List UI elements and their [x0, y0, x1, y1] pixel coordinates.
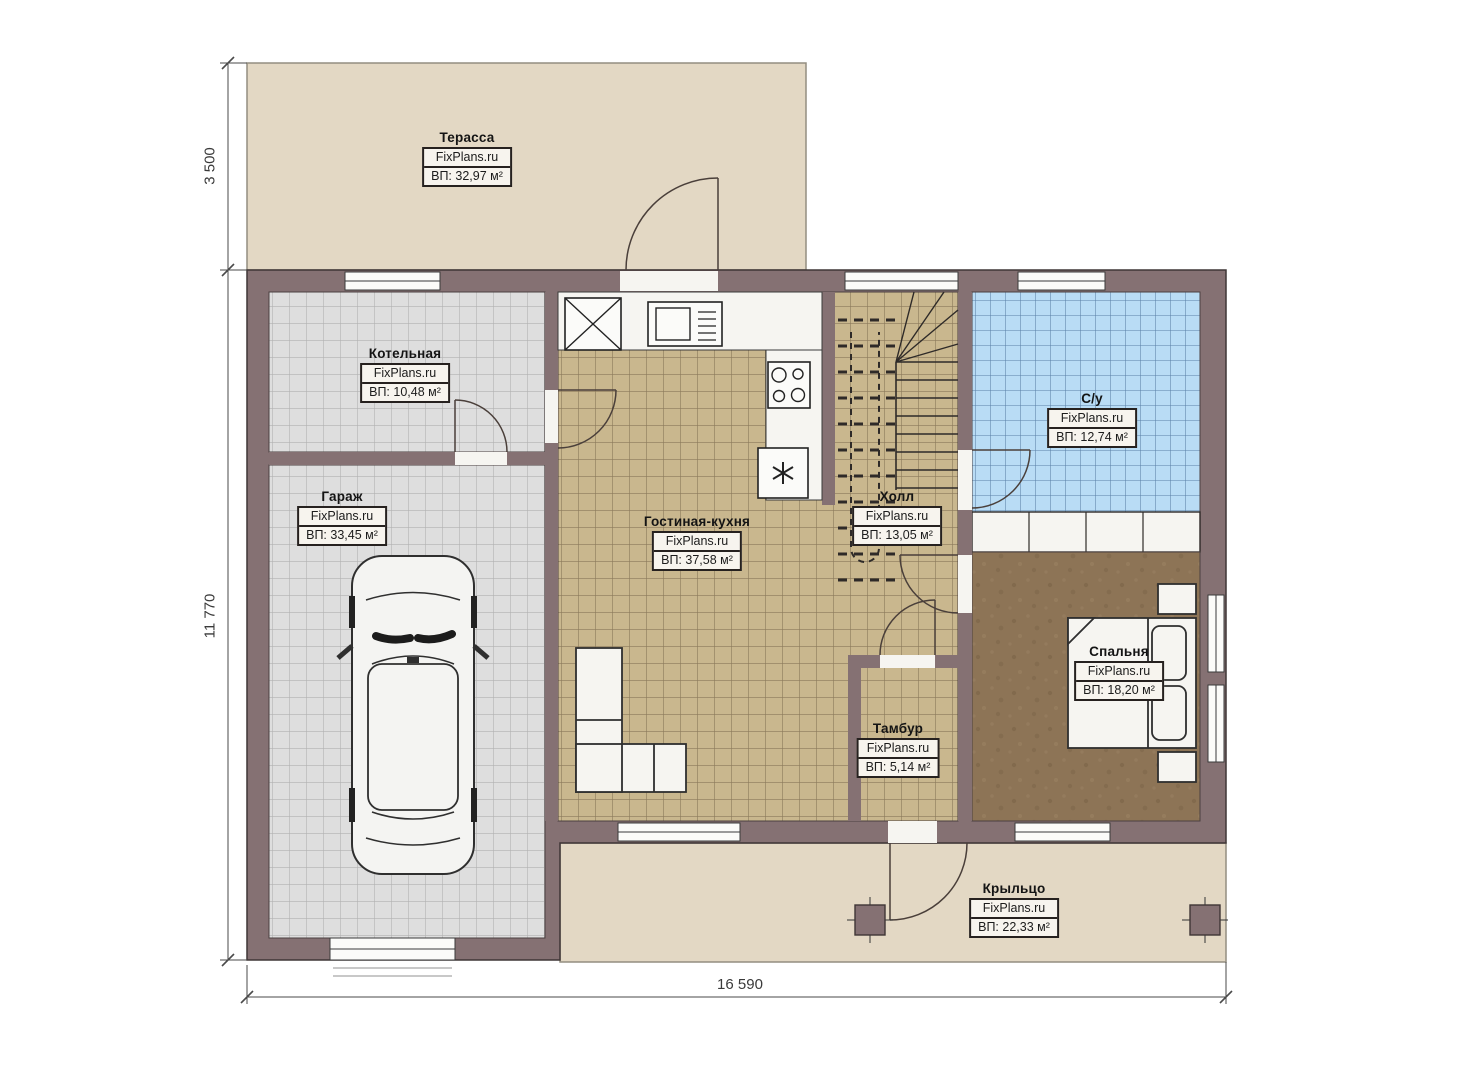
brand-text: FixPlans.ru	[299, 508, 385, 527]
room-name: Котельная	[360, 346, 450, 361]
column	[1190, 905, 1220, 935]
nightstand	[1158, 752, 1196, 782]
porch-deck	[560, 843, 1226, 962]
brand-text: FixPlans.ru	[859, 740, 938, 759]
room-name: Гостиная-кухня	[644, 514, 750, 529]
garage-gate	[330, 938, 455, 976]
room-info-box: FixPlans.ru ВП: 13,05 м²	[852, 506, 942, 546]
room-name: Гараж	[297, 489, 387, 504]
room-area-text: ВП: 33,45 м²	[299, 527, 385, 544]
room-info-box: FixPlans.ru ВП: 22,33 м²	[969, 898, 1059, 938]
room-area-text: ВП: 13,05 м²	[854, 527, 940, 544]
room-label-living-kitchen: Гостиная-кухня FixPlans.ru ВП: 37,58 м²	[644, 514, 750, 571]
room-area-text: ВП: 32,97 м²	[424, 168, 510, 185]
brand-text: FixPlans.ru	[1049, 410, 1135, 429]
room-label-vestibule: Тамбур FixPlans.ru ВП: 5,14 м²	[857, 721, 940, 778]
room-label-boiler: Котельная FixPlans.ru ВП: 10,48 м²	[360, 346, 450, 403]
room-label-garage: Гараж FixPlans.ru ВП: 33,45 м²	[297, 489, 387, 546]
stove-icon	[768, 362, 810, 408]
room-info-box: FixPlans.ru ВП: 10,48 м²	[360, 363, 450, 403]
brand-text: FixPlans.ru	[1076, 663, 1162, 682]
room-info-box: FixPlans.ru ВП: 37,58 м²	[652, 531, 742, 571]
brand-text: FixPlans.ru	[654, 533, 740, 552]
floor-plan-page: Терасса FixPlans.ru ВП: 32,97 м² Котельн…	[0, 0, 1473, 1080]
room-label-porch: Крыльцо FixPlans.ru ВП: 22,33 м²	[969, 881, 1059, 938]
room-label-bathroom: С/у FixPlans.ru ВП: 12,74 м²	[1047, 391, 1137, 448]
room-area-text: ВП: 18,20 м²	[1076, 682, 1162, 699]
room-name: Спальня	[1074, 644, 1164, 659]
terrace-deck	[247, 63, 806, 270]
column	[855, 905, 885, 935]
room-area-text: ВП: 37,58 м²	[654, 552, 740, 569]
room-info-box: FixPlans.ru ВП: 33,45 м²	[297, 506, 387, 546]
dimension-left-side: 11 770	[202, 594, 219, 639]
room-name: Крыльцо	[969, 881, 1059, 896]
car-icon	[338, 556, 488, 874]
sink-icon	[648, 302, 722, 346]
boiler-unit-icon	[758, 448, 808, 498]
terrace-door-opening	[620, 271, 718, 291]
brand-text: FixPlans.ru	[971, 900, 1057, 919]
room-label-terrace: Терасса FixPlans.ru ВП: 32,97 м²	[422, 130, 512, 187]
room-name: Холл	[852, 489, 942, 504]
shaft-icon	[565, 298, 621, 350]
room-area-text: ВП: 10,48 м²	[362, 384, 448, 401]
room-info-box: FixPlans.ru ВП: 5,14 м²	[857, 738, 940, 778]
dimension-bottom: 16 590	[717, 976, 763, 993]
nightstand	[1158, 584, 1196, 614]
room-label-bedroom: Спальня FixPlans.ru ВП: 18,20 м²	[1074, 644, 1164, 701]
room-info-box: FixPlans.ru ВП: 12,74 м²	[1047, 408, 1137, 448]
brand-text: FixPlans.ru	[854, 508, 940, 527]
room-label-hall: Холл FixPlans.ru ВП: 13,05 м²	[852, 489, 942, 546]
room-area-text: ВП: 12,74 м²	[1049, 429, 1135, 446]
room-info-box: FixPlans.ru ВП: 32,97 м²	[422, 147, 512, 187]
room-area-text: ВП: 22,33 м²	[971, 919, 1057, 936]
porch-door-opening	[888, 821, 937, 843]
brand-text: FixPlans.ru	[424, 149, 510, 168]
room-name: Терасса	[422, 130, 512, 145]
room-area-text: ВП: 5,14 м²	[859, 759, 938, 776]
dimension-left-top: 3 500	[202, 147, 219, 185]
room-info-box: FixPlans.ru ВП: 18,20 м²	[1074, 661, 1164, 701]
room-name: С/у	[1047, 391, 1137, 406]
brand-text: FixPlans.ru	[362, 365, 448, 384]
room-name: Тамбур	[857, 721, 940, 736]
